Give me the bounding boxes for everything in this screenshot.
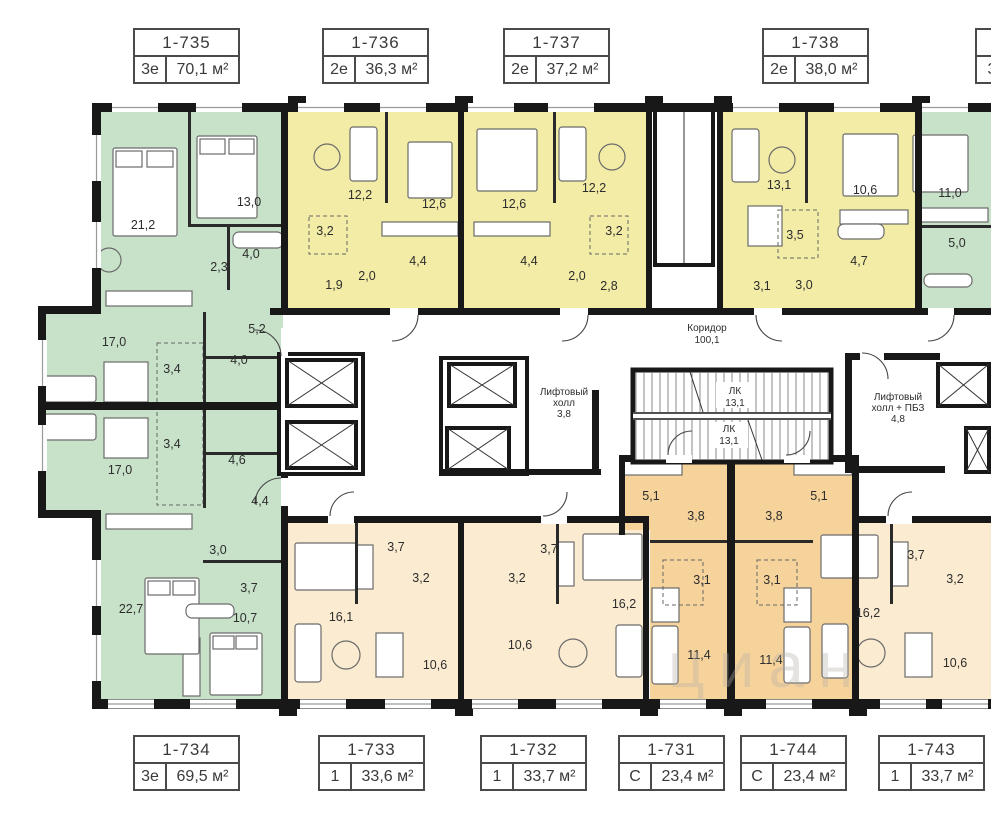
apartment-type: 3е — [135, 764, 167, 789]
apartment-number: 1-737 — [505, 30, 608, 57]
apartment-number: 1-743 — [880, 737, 983, 764]
room-area: 3,2 — [508, 571, 525, 585]
room-area: 3,8 — [765, 509, 782, 523]
room-area: 10,6 — [508, 638, 532, 652]
stairwell — [633, 370, 831, 462]
apartment-type: С — [742, 764, 774, 789]
stairs-label: ЛК — [723, 424, 736, 435]
apartment-area: 33,7 м² — [514, 764, 585, 789]
room-area: 3,2 — [316, 224, 333, 238]
room-area: 3,0 — [795, 278, 812, 292]
room-area: 2,8 — [600, 279, 617, 293]
apartment-area: 33,7 м² — [912, 764, 983, 789]
room-area: 4,4 — [409, 254, 426, 268]
room-area: 10,7 — [233, 611, 257, 625]
lift-hall-pbz-label: холл + ПБЗ — [872, 403, 925, 414]
room-area: 16,2 — [612, 597, 636, 611]
apartment-number: 1-738 — [764, 30, 867, 57]
lift-hall-label: Лифтовый — [540, 386, 588, 398]
room-area: 10,6 — [423, 658, 447, 672]
room-area: 21,2 — [131, 218, 155, 232]
room-area: 5,1 — [810, 489, 827, 503]
floor-plan: 21,2 13,0 2,3 4,0 5,2 17,0 3,4 4,0 17,0 … — [0, 0, 991, 816]
room-area: 12,6 — [502, 197, 526, 211]
apartment-type: 1 — [880, 764, 912, 789]
apartment-card-1-738[interactable]: 1-738 2е 38,0 м² — [762, 28, 869, 84]
apartment-number: 1-736 — [324, 30, 427, 57]
elevator-shaft — [938, 364, 989, 406]
apartment-type: С — [620, 764, 652, 789]
room-area: 13,0 — [237, 195, 261, 209]
apartment-area: 33,6 м² — [352, 764, 423, 789]
apartment-type: 2е — [324, 57, 356, 82]
room-area: 3,4 — [163, 437, 180, 451]
room-area: 11,4 — [759, 653, 782, 667]
room-area: 10,6 — [853, 183, 877, 197]
room-area: 3,2 — [412, 571, 429, 585]
apartment-number — [977, 30, 991, 57]
room-area: 3,4 — [163, 362, 180, 376]
apartment-card-1-735[interactable]: 1-735 3е 70,1 м² — [133, 28, 240, 84]
room-area: 5,1 — [642, 489, 659, 503]
apartment-card-1-734[interactable]: 1-734 3е 69,5 м² — [133, 735, 240, 791]
room-area: 17,0 — [102, 335, 126, 349]
apartment-type: 1 — [320, 764, 352, 789]
apartment-type: 2е — [505, 57, 537, 82]
room-area: 5,2 — [248, 322, 265, 336]
elevator-shaft — [966, 428, 989, 472]
room-area: 10,6 — [943, 656, 967, 670]
room-area: 3,1 — [763, 573, 780, 587]
apartment-card-1-732[interactable]: 1-732 1 33,7 м² — [480, 735, 587, 791]
lift-hall-label: холл — [553, 398, 575, 409]
apartment-card-1-744[interactable]: 1-744 С 23,4 м² — [740, 735, 847, 791]
apartment-area: 69,5 м² — [167, 764, 238, 789]
apartment-card-1-737[interactable]: 1-737 2е 37,2 м² — [503, 28, 610, 84]
elevator-shaft — [287, 360, 356, 406]
apartment-area: 23,4 м² — [652, 764, 723, 789]
room-area: 3,7 — [907, 548, 924, 562]
apartment-card-1-743[interactable]: 1-743 1 33,7 м² — [878, 735, 985, 791]
room-area: 12,2 — [582, 181, 606, 195]
elevator-shaft — [449, 364, 515, 406]
lift-hall-pbz-label: Лифтовый — [874, 391, 922, 403]
stairs-area: 13,1 — [719, 436, 739, 447]
room-area: 2,0 — [358, 269, 375, 283]
apartment-number: 1-744 — [742, 737, 845, 764]
elevator-shaft — [447, 428, 509, 470]
room-area: 4,7 — [850, 254, 867, 268]
apartment-card-1-736[interactable]: 1-736 2е 36,3 м² — [322, 28, 429, 84]
floor-plan-page: 21,2 13,0 2,3 4,0 5,2 17,0 3,4 4,0 17,0 … — [0, 0, 991, 816]
apartment-number: 1-733 — [320, 737, 423, 764]
room-area: 4,0 — [230, 353, 247, 367]
stairs-area: 13,1 — [725, 398, 745, 409]
apartment-area: 36,3 м² — [356, 57, 427, 82]
room-area: 1,9 — [325, 278, 342, 292]
room-area: 3,7 — [387, 540, 404, 554]
apartment-card-1-731[interactable]: 1-731 С 23,4 м² — [618, 735, 725, 791]
apartment-area: 23,4 м² — [774, 764, 845, 789]
room-area: 12,2 — [348, 188, 372, 202]
room-area: 3,5 — [786, 228, 803, 242]
room-area: 16,2 — [856, 606, 880, 620]
room-area: 3,2 — [946, 572, 963, 586]
apartment-area: 38,0 м² — [796, 57, 867, 82]
apartment-type: 1 — [482, 764, 514, 789]
room-area: 16,1 — [329, 610, 353, 624]
room-area: 11,0 — [938, 186, 961, 200]
apartment-number: 1-732 — [482, 737, 585, 764]
apartment-card-partial[interactable]: 3 — [975, 28, 991, 84]
room-area: 4,0 — [242, 247, 259, 261]
corridor-area: 100,1 — [694, 335, 719, 346]
room-area: 17,0 — [108, 463, 132, 477]
room-area: 12,6 — [422, 197, 446, 211]
room-area: 3,7 — [240, 581, 257, 595]
apartment-number: 1-735 — [135, 30, 238, 57]
room-area: 4,6 — [228, 453, 245, 467]
room-area: 3,1 — [693, 573, 710, 587]
room-area: 3,7 — [540, 542, 557, 556]
stairs-label: ЛК — [729, 386, 742, 397]
room-area: 3,0 — [209, 543, 226, 557]
room-area: 3,2 — [605, 224, 622, 238]
room-area: 4,4 — [251, 494, 268, 508]
room-area: 22,7 — [119, 602, 143, 616]
lift-hall-area: 3,8 — [557, 409, 571, 420]
apartment-type: 3 — [977, 57, 991, 82]
room-area: 11,4 — [687, 648, 710, 662]
room-area: 13,1 — [767, 178, 791, 192]
apartment-card-1-733[interactable]: 1-733 1 33,6 м² — [318, 735, 425, 791]
apartment-type: 3е — [135, 57, 167, 82]
apartment-type: 2е — [764, 57, 796, 82]
room-area: 2,0 — [568, 269, 585, 283]
room-area: 3,1 — [753, 279, 770, 293]
room-area: 2,3 — [210, 260, 227, 274]
apartment-number: 1-734 — [135, 737, 238, 764]
apartment-number: 1-731 — [620, 737, 723, 764]
corridor-label: Коридор — [687, 323, 727, 334]
room-area: 5,0 — [948, 236, 965, 250]
room-area: 3,8 — [687, 509, 704, 523]
room-area: 4,4 — [520, 254, 537, 268]
lift-hall-pbz-area: 4,8 — [891, 414, 905, 425]
apartment-area: 37,2 м² — [537, 57, 608, 82]
apartment-area: 70,1 м² — [167, 57, 238, 82]
elevator-shaft — [287, 422, 356, 468]
